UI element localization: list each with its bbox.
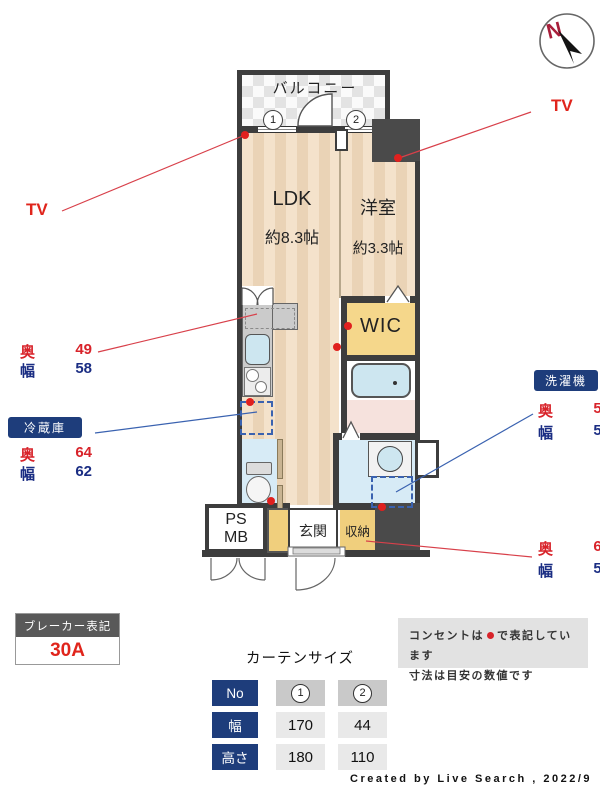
width-label: 幅 <box>538 560 553 581</box>
curtain-col2-height: 110 <box>338 744 387 770</box>
floor-plan-page: PS MB 玄関 収納 バルコニー 1 2 LDK 約8.3帖 洋室 約3.3帖… <box>0 0 600 800</box>
width-value: 58 <box>75 360 92 381</box>
width-value: 62 <box>75 463 92 484</box>
washer-depth: 奥 59 <box>538 400 600 421</box>
width-label: 幅 <box>20 360 35 381</box>
notes-box: コンセントはで表記しています 寸法は目安の数値です <box>398 618 588 668</box>
leader-washer <box>396 414 533 492</box>
width-value: 50 <box>593 560 600 581</box>
breaker-value: 30A <box>16 637 119 664</box>
compass-needle <box>558 30 582 64</box>
notes-line1-pre: コンセントは <box>409 630 484 642</box>
curtain-table-title: カーテンサイズ <box>230 648 370 666</box>
outlet-dot <box>241 131 249 139</box>
curtain-col2-no: 2 <box>338 680 387 706</box>
circled-number-1: 1 <box>291 684 310 703</box>
depth-value: 64 <box>75 444 92 465</box>
outlet-legend-dot <box>487 632 494 639</box>
width-label: 幅 <box>20 463 35 484</box>
compass-north-label: N <box>544 18 564 44</box>
wic-door-triangle <box>387 286 409 302</box>
kitchen-space-width: 幅 58 <box>20 360 92 381</box>
leader-tv-left <box>62 135 245 211</box>
outlet-dot <box>333 343 341 351</box>
bath-door-triangle <box>343 422 359 438</box>
leader-tv-right <box>399 112 531 158</box>
tv-label-left: TV <box>26 200 48 220</box>
leader-fridge <box>95 412 257 433</box>
kitchen-space-depth: 奥 49 <box>20 341 92 362</box>
depth-value: 68 <box>593 538 600 559</box>
washer-badge: 洗濯機 <box>534 370 598 391</box>
curtain-col1-width: 170 <box>276 712 325 738</box>
outlet-dot <box>394 154 402 162</box>
tv-label-right: TV <box>551 96 573 116</box>
outlet-dot <box>246 398 254 406</box>
washer-width: 幅 59 <box>538 422 600 443</box>
breaker-title: ブレーカー表記 <box>16 614 119 637</box>
fridge-badge: 冷蔵庫 <box>8 417 82 438</box>
width-value: 59 <box>593 422 600 443</box>
outlet-dot <box>267 497 275 505</box>
outlet-dot <box>344 322 352 330</box>
depth-label: 奥 <box>538 538 553 559</box>
fridge-depth: 奥 64 <box>20 444 92 465</box>
entrance-door-arc <box>296 558 335 590</box>
curtain-header-no: No <box>212 680 258 706</box>
outlet-dot <box>378 503 386 511</box>
curtain-col2-width: 44 <box>338 712 387 738</box>
leader-kitchen-space <box>98 314 257 352</box>
depth-label: 奥 <box>538 400 553 421</box>
compass: N <box>536 10 600 74</box>
depth-value: 59 <box>593 400 600 421</box>
curtain-col1-height: 180 <box>276 744 325 770</box>
fridge-width: 幅 62 <box>20 463 92 484</box>
depth-label: 奥 <box>20 341 35 362</box>
balcony-door-arc <box>298 94 332 126</box>
leader-storage <box>366 541 532 557</box>
storage-depth: 奥 68 <box>538 538 600 559</box>
psmb-door-arc-right <box>239 558 265 580</box>
curtain-header-width: 幅 <box>212 712 258 738</box>
psmb-door-arc-left <box>211 558 237 580</box>
notes-line-2: 寸法は目安の数値です <box>409 667 577 687</box>
storage-width: 幅 50 <box>538 560 600 581</box>
depth-label: 奥 <box>20 444 35 465</box>
curtain-header-height: 高さ <box>212 744 258 770</box>
breaker-box: ブレーカー表記 30A <box>15 613 120 665</box>
credit-text: Created by Live Search , 2022/9 <box>300 773 592 785</box>
width-label: 幅 <box>538 422 553 443</box>
curtain-col1-no: 1 <box>276 680 325 706</box>
circled-number-2: 2 <box>353 684 372 703</box>
depth-value: 49 <box>75 341 92 362</box>
notes-line-1: コンセントはで表記しています <box>409 627 577 667</box>
entrance-door-slab <box>293 548 340 554</box>
